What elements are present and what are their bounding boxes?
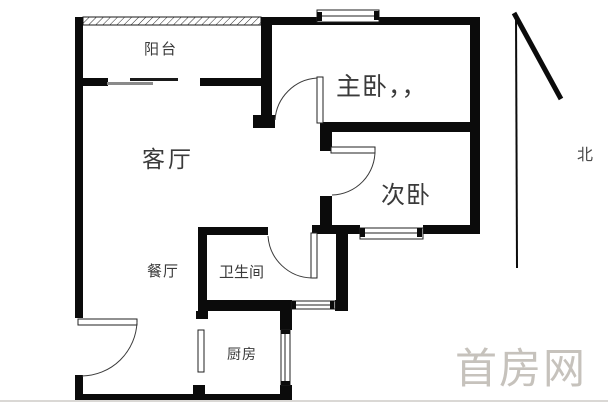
north-label: 北 — [577, 148, 593, 164]
wall-second-bottom-left — [312, 225, 360, 234]
wall-master-left — [261, 17, 272, 128]
window-cap — [374, 11, 379, 20]
wall-kitchen-left-lower-stub — [193, 385, 205, 395]
wall-balcony-bottom-right — [200, 78, 261, 86]
wall-bath-top — [198, 227, 268, 235]
room-label-balcony: 阳台 — [144, 42, 178, 57]
wall-left-upper — [75, 17, 83, 318]
wall-master-bottom — [320, 122, 470, 132]
window-cap — [317, 12, 322, 21]
site-watermark: 首房网 — [455, 335, 587, 396]
wall-kitchen-left-upper-stub — [196, 311, 208, 319]
window-cap — [360, 228, 365, 237]
wall-balcony-bottom-left — [75, 78, 108, 86]
second-bedroom-door-leaf — [331, 147, 375, 153]
room-label-bathroom: 卫生间 — [219, 265, 264, 280]
master-bedroom-door-leaf — [317, 77, 323, 123]
wall-right — [470, 17, 480, 233]
wall-hall-upper — [320, 122, 332, 151]
wall-master-left-foot — [253, 115, 275, 128]
wall-kitchen-right-upper — [280, 300, 292, 330]
north-arrow — [514, 13, 561, 268]
north-arrow-shaft — [516, 13, 517, 268]
north-arrow-head — [514, 13, 561, 99]
second-bedroom-door-swing-arc — [332, 150, 375, 195]
window-cap — [330, 301, 334, 309]
bathroom-door-swing-arc — [268, 236, 312, 278]
entry-door-leaf — [78, 319, 137, 325]
room-label-second-bedroom: 次卧 — [381, 184, 431, 208]
entry-door-swing-arc — [82, 322, 137, 376]
room-label-master-bedroom: 主卧，， — [336, 75, 428, 100]
balcony-sliding-door — [107, 78, 178, 85]
page-divider-line — [0, 400, 608, 402]
balcony-railing-hatch — [83, 17, 261, 25]
window-cap — [281, 330, 290, 334]
room-label-kitchen: 厨房 — [227, 347, 257, 361]
kitchen-door-leaf — [198, 330, 204, 372]
room-label-living-room: 客厅 — [142, 148, 194, 171]
wall-kitchen-right-lower — [280, 385, 292, 402]
window-cap — [292, 301, 296, 309]
wall-bath-left — [198, 227, 207, 311]
window-cap — [417, 228, 422, 237]
wall-bath-bottom-stub — [335, 300, 348, 311]
wall-kitchen-top — [198, 300, 292, 311]
wall-second-bottom-right — [423, 225, 480, 234]
slider-leaf-dark — [130, 78, 178, 81]
wall-bath-right — [336, 234, 348, 311]
room-label-dining-room: 餐厅 — [147, 264, 179, 279]
window-cap — [281, 381, 290, 385]
slider-leaf-gray — [107, 82, 153, 85]
master-bedroom-door-swing-arc — [275, 78, 317, 120]
floor-plan: 阳台 客厅 餐厅 主卧，， 次卧 卫生间 厨房 北 首房网 — [0, 0, 608, 404]
bathroom-door-leaf — [311, 233, 317, 278]
